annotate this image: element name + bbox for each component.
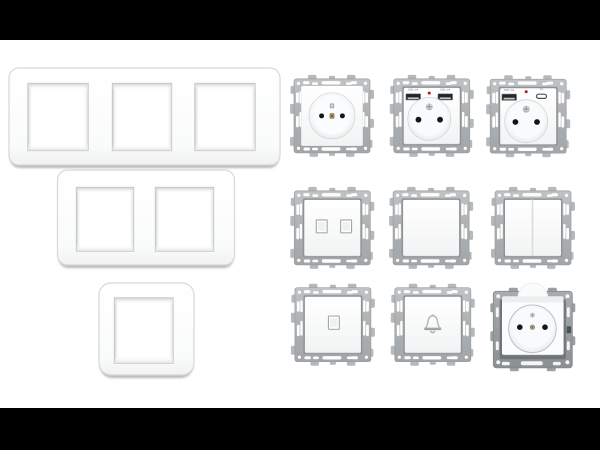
- svg-text:3A: 3A: [540, 87, 544, 91]
- svg-text:500 mA: 500 mA: [408, 88, 418, 92]
- svg-text:500 mA: 500 mA: [504, 88, 514, 92]
- svg-text:500 mA: 500 mA: [440, 88, 450, 92]
